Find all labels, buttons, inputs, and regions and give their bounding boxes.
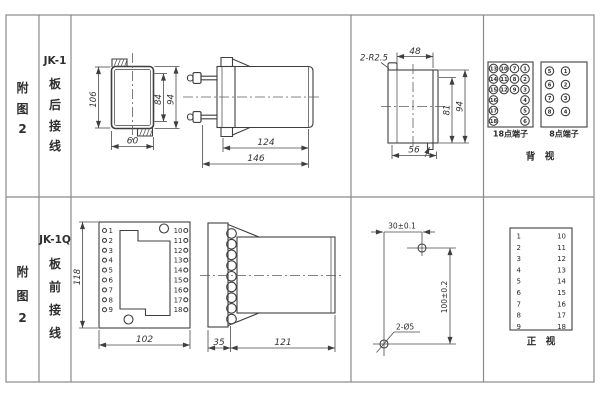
dim-label: 60 [127, 137, 139, 147]
svg-text:4: 4 [109, 257, 114, 265]
svg-text:12: 12 [557, 255, 566, 263]
svg-text:3: 3 [517, 255, 521, 263]
bottom-tab [428, 143, 434, 150]
svg-text:2: 2 [564, 82, 568, 88]
wiring-label-char: 接 [49, 118, 61, 133]
svg-text:16: 16 [174, 286, 183, 294]
svg-text:1: 1 [109, 227, 113, 235]
jk1-rear-outline-drawing: 106 84 94 60 [89, 53, 180, 150]
dim-label: 30±0.1 [388, 222, 416, 231]
dim-label: 81 [443, 105, 453, 116]
svg-text:18: 18 [174, 306, 183, 314]
dim-label: 118 [73, 268, 83, 285]
svg-text:16: 16 [490, 98, 498, 104]
dim-label: 35 [213, 338, 225, 348]
svg-text:15: 15 [490, 87, 498, 93]
dim-label: 84 [154, 94, 164, 105]
svg-text:8: 8 [548, 109, 552, 115]
dim-label: 56 [408, 146, 420, 156]
svg-text:8: 8 [109, 296, 113, 304]
svg-text:11: 11 [174, 237, 183, 245]
svg-text:9: 9 [517, 323, 521, 331]
figure-label-char: 2 [18, 311, 26, 325]
svg-text:12: 12 [174, 247, 183, 255]
stepped-cutout [120, 231, 170, 316]
wiring-label-char: 线 [49, 138, 61, 153]
svg-text:9: 9 [513, 87, 517, 93]
svg-text:8: 8 [517, 312, 521, 320]
front-plate [208, 223, 228, 327]
terminal-screw [188, 73, 218, 84]
svg-text:15: 15 [557, 289, 566, 297]
svg-text:17: 17 [174, 296, 183, 304]
svg-text:18: 18 [557, 323, 566, 331]
svg-text:13: 13 [490, 66, 498, 72]
svg-text:12: 12 [500, 87, 508, 93]
hole-diameter-label: 2-Ø5 [396, 323, 414, 332]
svg-text:6: 6 [517, 289, 522, 297]
wiring-label-char: 板 [49, 76, 62, 91]
model-label: JK-1Q [38, 234, 71, 246]
svg-text:11: 11 [557, 244, 566, 252]
svg-text:4: 4 [564, 109, 568, 115]
drilling-plan-drawing: 30±0.1 100±0.2 2-Ø5 [371, 222, 456, 357]
svg-text:10: 10 [174, 227, 183, 235]
svg-text:1: 1 [517, 233, 521, 241]
svg-text:6: 6 [523, 119, 527, 125]
svg-text:13: 13 [557, 266, 566, 274]
jk1-side-view-drawing: 124 146 [183, 58, 320, 169]
dim-label: 48 [409, 47, 421, 57]
svg-text:14: 14 [174, 267, 183, 275]
svg-text:10: 10 [500, 66, 508, 72]
dim-124 [223, 129, 309, 168]
sidebar-bottom-labels: 附 图 2 JK-1Q 板 前 接 线 [16, 234, 70, 340]
model-label: JK-1 [43, 55, 67, 67]
wiring-label-char: 后 [49, 97, 61, 112]
svg-text:5: 5 [523, 108, 527, 114]
svg-text:14: 14 [557, 278, 566, 286]
wiring-label-char: 线 [49, 325, 61, 340]
corner-tab [388, 63, 397, 70]
svg-text:3: 3 [564, 96, 568, 102]
table-left-numbers: 1 2 3 4 5 6 7 8 9 [517, 233, 522, 331]
dim-label: 106 [89, 91, 99, 108]
wiring-label-char: 板 [49, 256, 62, 271]
svg-text:6: 6 [109, 277, 114, 285]
front-view-label: 正 视 [527, 336, 556, 348]
figure-label-char: 2 [18, 122, 26, 136]
dim-label: 94 [456, 101, 466, 112]
rear-view-label: 背 视 [526, 151, 555, 163]
wiring-label-char: 接 [49, 302, 61, 317]
dim-label: 121 [274, 338, 291, 348]
svg-text:13: 13 [174, 257, 183, 265]
svg-text:9: 9 [109, 306, 113, 314]
left-terminal-numbers: 1 2 3 4 5 6 7 8 9 [109, 227, 114, 314]
relay-body [237, 237, 335, 313]
svg-text:4: 4 [523, 98, 527, 104]
hatch-bottom [140, 129, 153, 137]
terminal18-circles [489, 64, 529, 125]
terminal18-label: 18点端子 [493, 129, 528, 139]
svg-text:3: 3 [109, 247, 113, 255]
figure-label-char: 附 [16, 264, 28, 279]
svg-text:2: 2 [523, 77, 527, 83]
radius-label: 2-R2.5 [360, 54, 388, 64]
jk1q-side-view-drawing: 35 121 [200, 223, 344, 352]
svg-text:11: 11 [500, 77, 508, 83]
hatch-top [114, 59, 127, 67]
svg-text:18: 18 [490, 119, 498, 125]
terminal8-label: 8点端子 [549, 129, 579, 139]
svg-text:10: 10 [557, 233, 566, 241]
svg-text:7: 7 [548, 96, 552, 102]
dim-label: 146 [247, 154, 264, 164]
svg-text:1: 1 [564, 69, 568, 75]
jk1-panel-cutout-drawing: 48 2-R2.5 81 94 56 [360, 47, 469, 159]
terminal-rear-view: 13 10 7 1 14 11 8 2 15 12 9 3 16 4 17 5 … [488, 62, 587, 163]
svg-text:6: 6 [548, 82, 552, 88]
dim-label: 124 [257, 138, 274, 148]
figure-label-char: 图 [16, 289, 28, 303]
mount-hole-bottom [124, 315, 133, 324]
svg-text:14: 14 [490, 77, 498, 83]
svg-text:16: 16 [557, 300, 566, 308]
svg-text:15: 15 [174, 277, 183, 285]
svg-text:17: 17 [557, 312, 566, 320]
sidebar-top-labels: 附 图 2 JK-1 板 后 接 线 [16, 55, 66, 153]
mount-hole-top [160, 224, 169, 233]
dim-label: 102 [136, 335, 153, 345]
svg-text:5: 5 [109, 267, 113, 275]
svg-text:1: 1 [523, 66, 527, 72]
figure-label-char: 图 [16, 102, 28, 116]
svg-text:7: 7 [513, 66, 517, 72]
left-terminal-circles [103, 229, 107, 312]
svg-text:8: 8 [513, 77, 517, 83]
terminal-screw [188, 112, 218, 123]
terminal8-numbers: 5 1 6 2 7 3 8 4 [548, 69, 568, 116]
svg-text:7: 7 [109, 286, 113, 294]
svg-text:2: 2 [517, 244, 521, 252]
svg-text:7: 7 [517, 300, 521, 308]
right-terminal-numbers: 10 11 12 13 14 15 16 17 18 [174, 227, 183, 314]
svg-text:3: 3 [523, 87, 527, 93]
terminal-front-view: 1 2 3 4 5 6 7 8 9 10 11 12 13 14 15 16 1… [510, 228, 572, 348]
svg-text:17: 17 [490, 108, 498, 114]
svg-text:2: 2 [109, 237, 113, 245]
svg-text:4: 4 [517, 266, 522, 274]
right-terminal-circles [184, 229, 188, 312]
drawing-sheet: 附 图 2 JK-1 板 后 接 线 附 图 2 JK-1Q 板 前 接 线 [0, 0, 600, 400]
svg-text:5: 5 [517, 278, 521, 286]
svg-text:5: 5 [548, 69, 552, 75]
wiring-label-char: 前 [49, 279, 61, 294]
dim-label: 100±0.2 [440, 281, 449, 314]
table-right-numbers: 10 11 12 13 14 15 16 17 18 [557, 233, 566, 331]
jk1q-front-view-drawing: 1 2 3 4 5 6 7 8 9 10 11 12 13 14 15 16 1… [73, 222, 190, 349]
figure-label-char: 附 [16, 80, 28, 95]
dim-label: 94 [167, 94, 177, 105]
